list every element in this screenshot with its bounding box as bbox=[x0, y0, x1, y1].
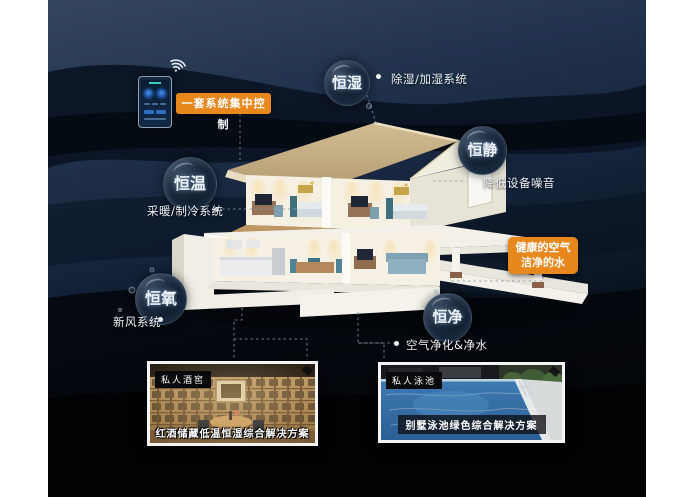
bubble-label: 恒温 bbox=[174, 174, 206, 193]
pool-card: 私人泳池 别墅泳池绿色综合解决方案 bbox=[378, 362, 565, 443]
humidity-dial[interactable] bbox=[157, 89, 166, 98]
wine-cellar-tag: 私人酒窖 bbox=[155, 371, 211, 388]
label-hvac-system: 采暖/制冷系统 bbox=[147, 203, 223, 219]
app-title-bar bbox=[149, 82, 161, 84]
bubble-label: 恒净 bbox=[432, 308, 462, 326]
temperature-dial[interactable] bbox=[144, 89, 153, 98]
pool-caption: 别墅泳池绿色综合解决方案 bbox=[398, 415, 546, 434]
stat-row bbox=[160, 103, 166, 105]
bubble-label: 恒静 bbox=[467, 141, 497, 159]
bubble-constant-purity: 恒净 bbox=[423, 293, 472, 342]
stat-row bbox=[152, 103, 158, 105]
bubble-constant-quiet: 恒静 bbox=[458, 126, 507, 175]
label-fresh-air-system: 新风系统 bbox=[113, 314, 161, 330]
wine-cellar-caption: 红酒储藏低温恒湿综合解决方案 bbox=[150, 425, 315, 440]
label-purification-system: 空气净化&净水 bbox=[406, 337, 487, 353]
phone-app-screen bbox=[141, 80, 169, 124]
healthy-air-water-box: 健康的空气 洁净的水 bbox=[508, 237, 578, 274]
highlight-line1: 健康的空气 bbox=[508, 240, 578, 255]
highlight-line2: 洁净的水 bbox=[508, 255, 578, 270]
stat-row bbox=[144, 118, 166, 120]
bubble-label: 恒氧 bbox=[145, 289, 177, 308]
smart-home-phone bbox=[138, 76, 172, 128]
pool-tag: 私人泳池 bbox=[386, 372, 442, 389]
bubble-constant-humidity: 恒湿 bbox=[324, 60, 370, 106]
infographic-canvas: 一套系统集中控制 恒湿 恒静 恒温 恒氧 恒净 除湿/加湿系统 降低设备噪音 采… bbox=[0, 0, 700, 497]
stat-row bbox=[144, 103, 150, 105]
central-control-label: 一套系统集中控制 bbox=[176, 93, 271, 114]
bullet-dot bbox=[376, 74, 381, 79]
label-humidity-system: 除湿/加湿系统 bbox=[391, 71, 467, 87]
bubble-label: 恒湿 bbox=[332, 74, 362, 92]
label-noise-system: 降低设备噪音 bbox=[483, 175, 555, 191]
wifi-icon bbox=[164, 56, 188, 78]
bullet-dot bbox=[394, 341, 399, 346]
bullet-dot bbox=[469, 179, 474, 184]
wine-cellar-card: 私人酒窖 红酒储藏低温恒湿综合解决方案 bbox=[147, 361, 318, 446]
app-button[interactable] bbox=[156, 110, 166, 114]
app-button[interactable] bbox=[144, 110, 154, 114]
